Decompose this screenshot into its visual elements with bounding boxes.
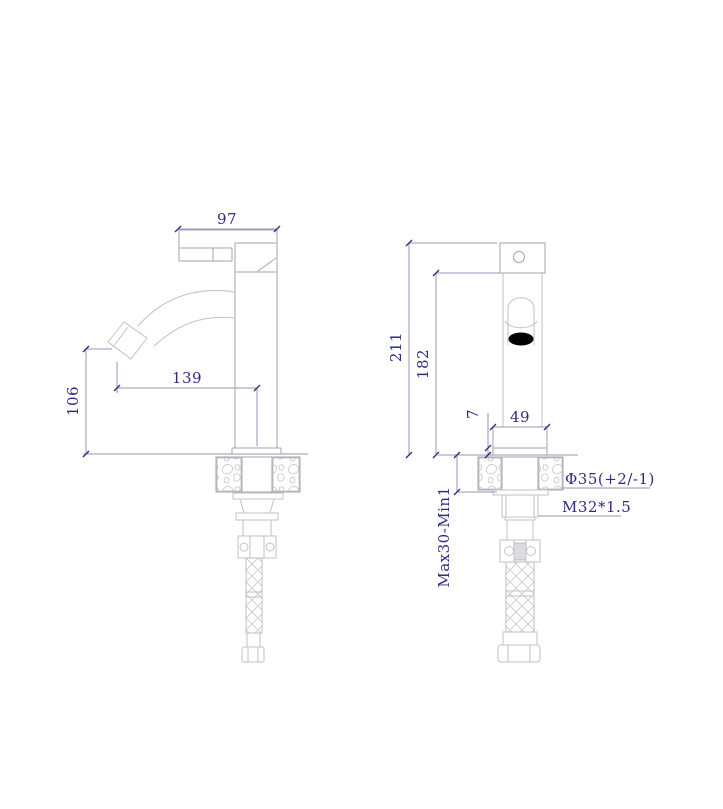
faucet-body-front bbox=[503, 273, 542, 427]
handle-pin-hole bbox=[514, 252, 525, 263]
braided-hose-side bbox=[246, 558, 262, 633]
base-flange-side bbox=[232, 448, 281, 454]
dim-label-spout-reach: 139 bbox=[172, 369, 202, 387]
drawing-canvas: 97 139 106 211 182 7 49 Φ35(+2/-1 bbox=[0, 0, 723, 809]
mounting-nut-side bbox=[216, 457, 300, 492]
dim-label-overall-height: 211 bbox=[387, 332, 405, 362]
dim-label-base-width: 49 bbox=[510, 408, 530, 426]
outlet-opening bbox=[509, 333, 534, 346]
handle-lever bbox=[179, 230, 277, 261]
faucet-technical-drawing: 97 139 106 211 182 7 49 Φ35(+2/-1 bbox=[0, 0, 723, 809]
mounting-nut-front bbox=[478, 457, 563, 490]
shank-and-hose-side bbox=[233, 493, 283, 662]
dimension-106: 106 bbox=[64, 346, 112, 457]
faucet-body-side bbox=[235, 272, 277, 448]
dimension-7: 7 bbox=[464, 409, 491, 458]
hose-end-nut-front bbox=[498, 645, 540, 662]
top-cap-front bbox=[500, 243, 545, 273]
base-block-front bbox=[493, 427, 547, 455]
hose-fitting-side bbox=[238, 536, 276, 558]
dimension-182: 182 bbox=[414, 270, 500, 458]
spout bbox=[108, 290, 235, 359]
dim-label-spout-height: 106 bbox=[64, 386, 82, 416]
dimension-139: 139 bbox=[114, 362, 260, 446]
dim-label-body-height: 182 bbox=[414, 349, 432, 379]
dim-label-thread-spec: M32*1.5 bbox=[562, 498, 631, 516]
dim-label-mount-nut-diameter: Φ35(+2/-1) bbox=[565, 470, 655, 488]
dimension-97: 97 bbox=[175, 210, 280, 232]
dimension-phi35: Φ35(+2/-1) bbox=[563, 470, 655, 488]
hose-end-nut-side bbox=[242, 647, 264, 662]
dimension-m32: M32*1.5 bbox=[538, 498, 631, 516]
dim-label-handle-width: 97 bbox=[217, 210, 237, 228]
spout-outlet-front bbox=[505, 298, 537, 346]
braided-hose-front bbox=[506, 562, 534, 632]
threaded-shank bbox=[502, 495, 538, 517]
side-view bbox=[83, 230, 308, 662]
dim-label-deck-plate-height: 7 bbox=[464, 409, 482, 419]
dim-label-deck-clamp-range: Max30-Min1 bbox=[435, 486, 453, 587]
body-cap bbox=[235, 230, 277, 272]
dimension-49: 49 bbox=[490, 408, 550, 430]
